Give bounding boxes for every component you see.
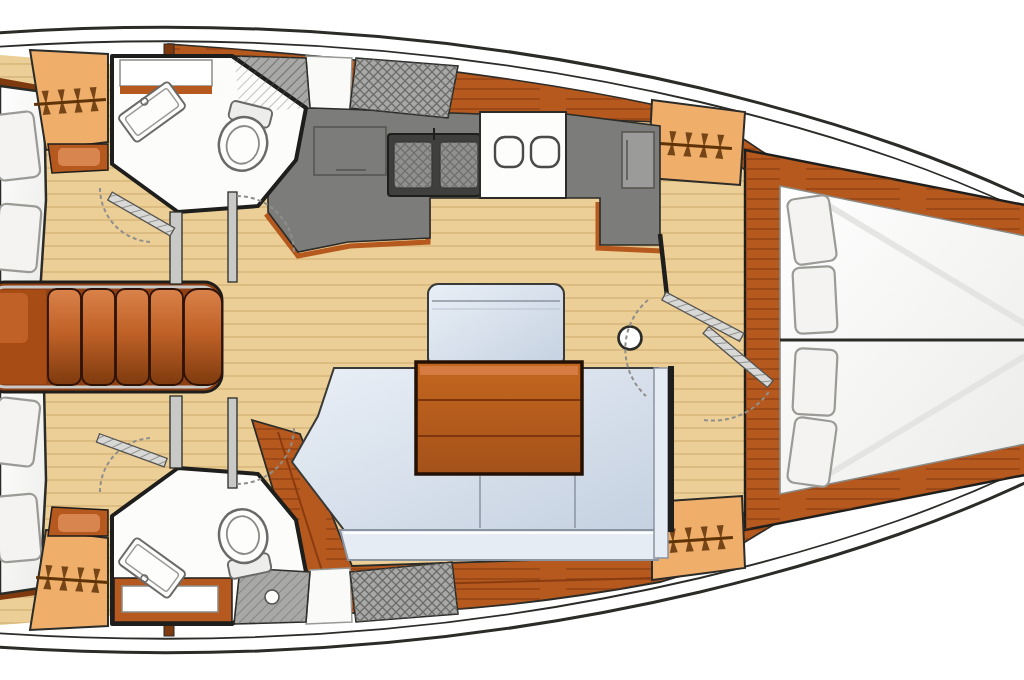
burner-grate: [394, 142, 432, 188]
steps-landing-top: [0, 293, 28, 343]
step-1: [48, 289, 81, 385]
deck-window-bottom: [306, 568, 352, 624]
pillow: [0, 203, 42, 272]
burner-grate: [440, 142, 478, 188]
hatch-lines: [350, 562, 458, 622]
floor-plan-canvas: [0, 0, 1024, 680]
wall-post: [170, 396, 182, 468]
step-2: [82, 289, 115, 385]
wall-post: [228, 192, 237, 282]
step-4: [150, 289, 183, 385]
drain-icon: [265, 590, 279, 604]
galley-sink-unit: [480, 112, 566, 198]
shelf-inlay: [58, 514, 100, 532]
shelf-inlay: [58, 148, 100, 166]
wall-post: [170, 212, 182, 284]
fore-bench: [428, 284, 564, 368]
step-5: [184, 289, 222, 385]
settee-front-edge: [340, 530, 658, 560]
pillow: [0, 397, 41, 468]
pillow: [0, 493, 42, 562]
step-3: [116, 289, 149, 385]
pillow: [0, 111, 41, 182]
companionway-steps: [0, 282, 222, 392]
settee-side-edge: [654, 368, 668, 558]
hatch-lines: [350, 58, 458, 118]
mast-icon: [619, 327, 642, 350]
vberth-pillow-3: [792, 348, 837, 416]
vberth-pillow-2: [792, 266, 837, 334]
table-highlight: [420, 366, 578, 375]
vberth-pillow-4: [787, 416, 838, 487]
wall-post: [228, 398, 237, 488]
stove: [388, 128, 480, 196]
deck-window-top: [306, 56, 352, 112]
table-top: [416, 362, 582, 474]
boat-floor-plan: [0, 0, 1024, 680]
bulkhead-wall: [668, 366, 674, 532]
salon-table: [416, 362, 582, 474]
vberth-pillow-1: [787, 194, 838, 265]
